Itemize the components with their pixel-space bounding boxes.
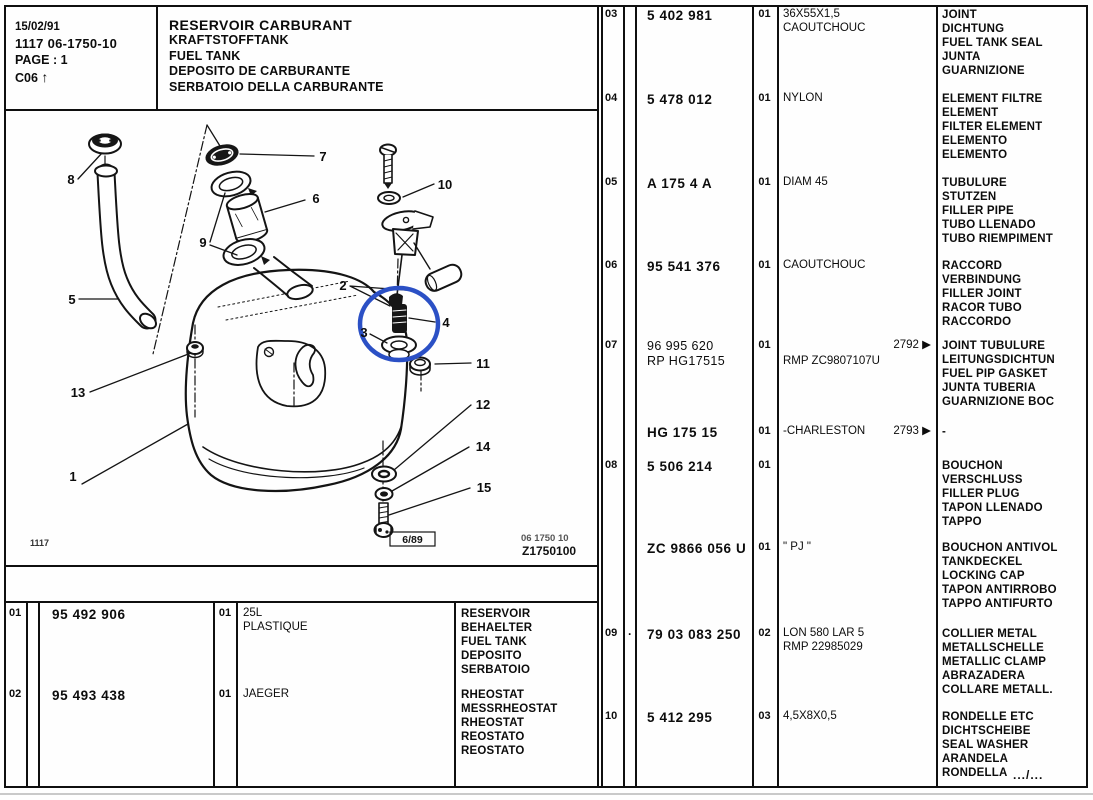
filler-pipe	[95, 166, 159, 332]
part-number: 5 506 214	[641, 459, 757, 474]
col-line	[777, 7, 779, 786]
item-number: 02	[9, 688, 25, 700]
spec: DIAM 45	[777, 176, 936, 190]
item-number: 09	[605, 627, 622, 639]
callout-9: 9	[199, 235, 206, 250]
supersession-note: 2792 ▶	[893, 339, 931, 353]
document-date: 15/02/91	[15, 19, 152, 35]
tank-recess-handle	[295, 345, 315, 386]
spec: 4,5X8X0,5	[777, 710, 936, 724]
supersession-note: 2793 ▶	[893, 425, 931, 439]
part-names: BOUCHON VERSCHLUSS FILLER PLUG TAPON LLE…	[936, 459, 1086, 529]
part-names: JOINT DICHTUNG FUEL TANK SEAL JUNTA GUAR…	[936, 8, 1086, 78]
callout-4: 4	[442, 315, 450, 330]
doc-ref-top: 06 1750 10	[521, 533, 569, 544]
spec: CAOUTCHOUC	[777, 259, 936, 273]
quantity: 01	[213, 607, 237, 619]
callout-5: 5	[68, 292, 75, 307]
part-number: 95 492 906	[42, 607, 220, 622]
part-number: 5 402 981	[641, 8, 757, 23]
row-marker-dot: ·	[623, 627, 637, 641]
part-number: 95 493 438	[42, 688, 220, 703]
part-names: RESERVOIR BEHAELTER FUEL TANK DEPOSITO S…	[454, 607, 599, 677]
callout-3: 3	[360, 325, 367, 340]
part-names: RHEOSTAT MESSRHEOSTAT RHEOSTAT REOSTATO …	[454, 688, 599, 758]
quantity: 01	[752, 459, 777, 471]
parts-table-right: 03 5 402 981 01 36X55X1,5 CAOUTCHOUC JOI…	[603, 7, 1086, 786]
col-line	[38, 603, 40, 786]
drawing-ref: Z1750100	[522, 544, 576, 558]
callout-6: 6	[312, 191, 319, 206]
item-number: 01	[9, 607, 25, 619]
part-number: HG 175 15	[641, 425, 757, 440]
page-title: RESERVOIR CARBURANT	[169, 17, 599, 33]
part-number: ZC 9866 056 U	[641, 541, 757, 556]
col-line	[635, 7, 637, 786]
spec: JAEGER	[236, 688, 454, 702]
section-code: C06 ↑	[15, 69, 152, 87]
item-number: 10	[605, 710, 622, 722]
fuel-tank-exploded-diagram: 1 2 3 4 5 6 7 8 9 10 11 12 13 14 15 1117…	[6, 111, 599, 565]
quantity: 01	[752, 541, 777, 553]
callout-1: 1	[69, 469, 76, 484]
leader-lines	[78, 153, 471, 515]
title-en: FUEL TANK	[169, 49, 599, 65]
item-number: 06	[605, 259, 622, 271]
part-names: COLLIER METAL METALLSCHELLE METALLIC CLA…	[936, 627, 1086, 697]
spec: LON 580 LAR 5 RMP 22985029	[777, 627, 936, 654]
parts-table-left: 01 95 492 906 01 25L PLASTIQUE RESERVOIR…	[6, 601, 599, 786]
part-names: BOUCHON ANTIVOL TANKDECKEL LOCKING CAP T…	[936, 541, 1086, 611]
item-number: 03	[605, 8, 622, 20]
part-names: JOINT TUBULURE LEITUNGSDICHTUN FUEL PIP …	[936, 339, 1086, 409]
document-info-block: 15/02/91 1117 06-1750-10 PAGE : 1 C06 ↑	[6, 7, 158, 109]
part-number: 96 995 620 RP HG17515	[641, 339, 757, 369]
parts-catalog-page: { "header": { "date": "15/02/91", "doc_n…	[0, 0, 1093, 800]
callout-11: 11	[476, 356, 490, 371]
screw-washer	[378, 192, 400, 204]
col-line	[26, 603, 28, 786]
part-names: RACCORD VERBINDUNG FILLER JOINT RACOR TU…	[936, 259, 1086, 329]
callout-12: 12	[476, 397, 490, 412]
washer-12	[372, 467, 396, 482]
title-de: KRAFTSTOFFTANK	[169, 33, 599, 49]
quantity: 01	[752, 339, 777, 351]
screw	[380, 145, 396, 190]
callout-8: 8	[67, 172, 74, 187]
quantity: 01	[752, 425, 777, 437]
quantity: 01	[752, 92, 777, 104]
part-number: 5 478 012	[641, 92, 757, 107]
col-line	[623, 7, 625, 786]
spec: 36X55X1,5 CAOUTCHOUC	[777, 8, 936, 35]
spec: " PJ "	[777, 541, 936, 555]
spec: 25L PLASTIQUE	[236, 607, 454, 634]
item-number: 07	[605, 339, 622, 351]
quantity: 02	[752, 627, 777, 639]
part-number: 5 412 295	[641, 710, 757, 725]
part-number: A 175 4 A	[641, 176, 757, 191]
quantity: 03	[752, 710, 777, 722]
continuation-mark: .../...	[1013, 768, 1078, 782]
title-it: SERBATOIO DELLA CARBURANTE	[169, 80, 599, 96]
scan-edge-line	[0, 793, 1093, 795]
callout-2: 2	[339, 278, 346, 293]
tank-body	[186, 270, 407, 491]
quantity: 01	[752, 176, 777, 188]
item-number: 08	[605, 459, 622, 471]
part-names: ELEMENT FILTRE ELEMENT FILTER ELEMENT EL…	[936, 92, 1086, 162]
spec: RMP ZC9807107U	[783, 355, 936, 369]
revision-date: 6/89	[402, 534, 423, 546]
diagram-area: 1 2 3 4 5 6 7 8 9 10 11 12 13 14 15 1117…	[6, 111, 599, 567]
filler-cap	[89, 134, 121, 154]
cap-disc	[203, 141, 241, 170]
item-number: 04	[605, 92, 622, 104]
sheet-code: 1117	[30, 538, 49, 548]
title-block: RESERVOIR CARBURANT KRAFTSTOFFTANK FUEL …	[158, 7, 599, 109]
title-es: DEPOSITO DE CARBURANTE	[169, 64, 599, 80]
quantity: 01	[752, 8, 777, 20]
pickup-filter	[389, 293, 407, 333]
title-row: 15/02/91 1117 06-1750-10 PAGE : 1 C06 ↑ …	[6, 7, 599, 111]
quantity: 01	[213, 688, 237, 700]
callout-14: 14	[476, 439, 491, 454]
document-number: 1117 06-1750-10	[15, 35, 152, 52]
page-number: PAGE : 1	[15, 52, 152, 69]
part-number: 79 03 083 250	[641, 627, 757, 642]
callout-7: 7	[319, 149, 326, 164]
part-names: -	[936, 425, 1086, 439]
callout-15: 15	[477, 480, 491, 495]
washer-14	[376, 488, 393, 500]
spec: NYLON	[777, 92, 936, 106]
part-names: TUBULURE STUTZEN FILLER PIPE TUBO LLENAD…	[936, 176, 1086, 246]
part-number: 95 541 376	[641, 259, 757, 274]
col-line	[752, 7, 754, 786]
callout-13: 13	[71, 385, 85, 400]
neck-cylinder	[225, 191, 269, 245]
callout-10: 10	[438, 177, 452, 192]
quantity: 01	[752, 259, 777, 271]
up-arrow-icon: ↑	[41, 69, 48, 85]
item-number: 05	[605, 176, 622, 188]
nut-11	[410, 358, 430, 376]
